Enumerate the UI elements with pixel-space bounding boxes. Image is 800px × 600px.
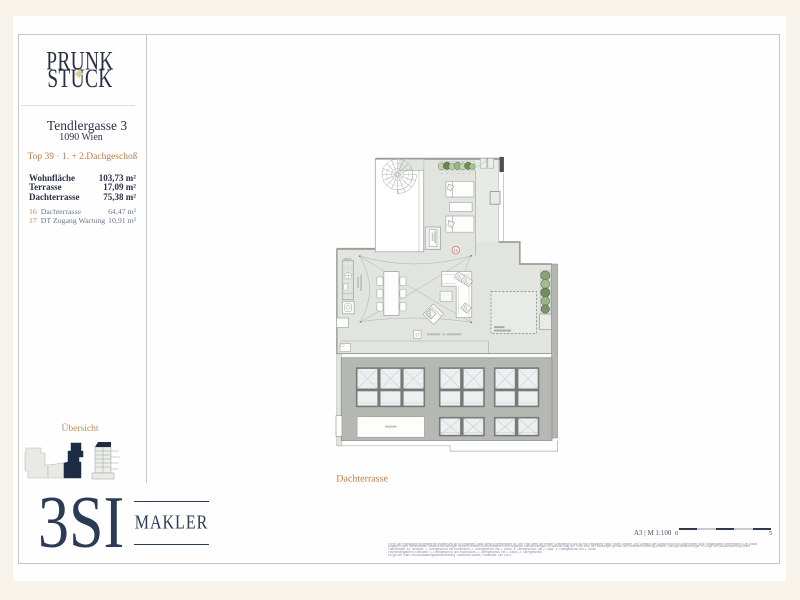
svg-text:17: 17 xyxy=(415,332,420,337)
svg-text:Dachterrasse: Dachterrasse xyxy=(336,474,388,485)
